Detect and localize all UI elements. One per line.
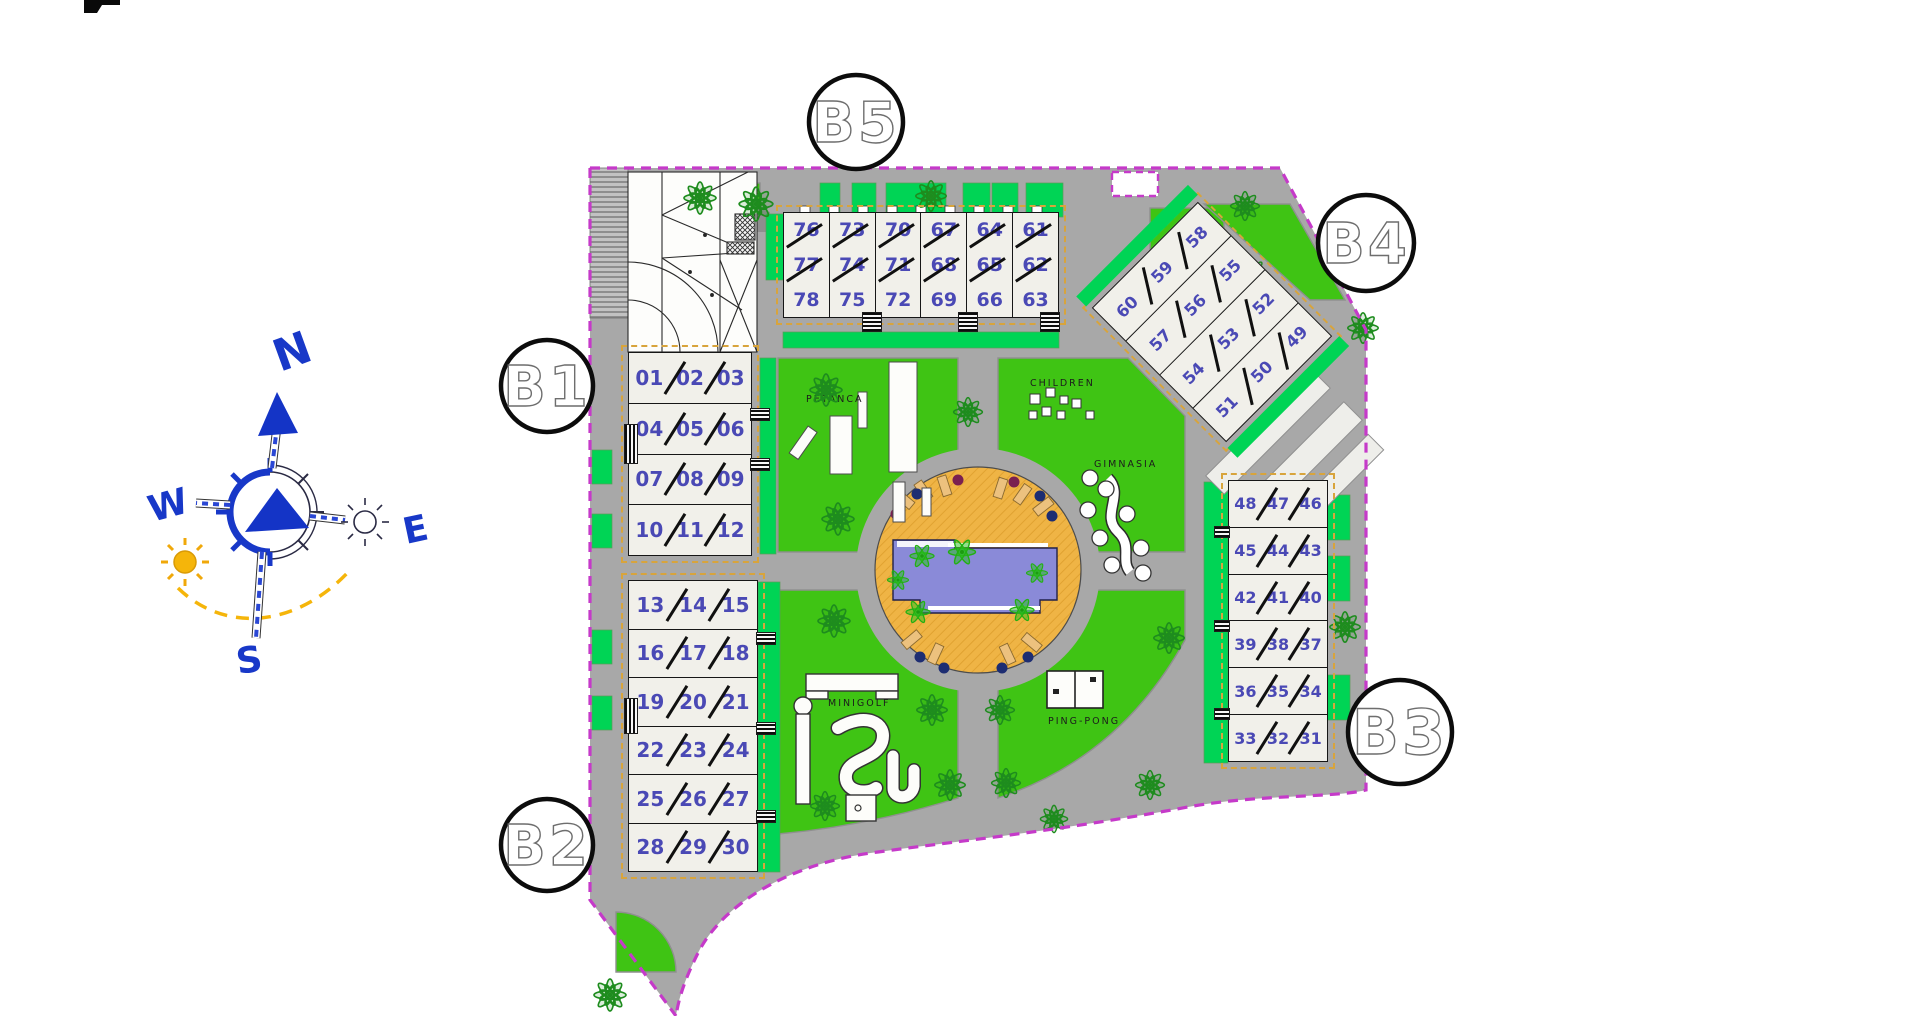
unit-row: 33 32 31 [1229, 714, 1327, 761]
building-b3: 48 47 46 45 44 43 42 41 40 39 38 37 36 3… [1228, 480, 1328, 762]
sun-icon-yellow [161, 538, 209, 586]
unit-number: 06 [710, 404, 751, 454]
unit-number: 08 [670, 455, 711, 505]
unit-column: 76 77 78 [784, 213, 829, 317]
unit-number: 25 [629, 775, 672, 823]
unit-column: 64 65 66 [966, 213, 1012, 317]
unit-row: 10 11 12 [629, 504, 751, 555]
stairwell-hatch [624, 698, 638, 734]
stairwell-hatch [756, 810, 776, 823]
unit-number: 43 [1294, 528, 1327, 574]
stairwell-hatch [958, 312, 978, 332]
unit-column: 61 62 63 [1012, 213, 1058, 317]
unit-number: 16 [629, 630, 672, 678]
unit-column: 67 68 69 [920, 213, 966, 317]
unit-number: 27 [714, 775, 757, 823]
stairwell-hatch [624, 424, 638, 464]
compass-w-label: W [144, 481, 193, 531]
stairwell-hatch [1214, 526, 1230, 538]
unit-row: 28 29 30 [629, 823, 757, 872]
unit-column: 73 74 75 [829, 213, 875, 317]
stairwell-hatch [1214, 620, 1230, 632]
compass-rose: N W E S [144, 322, 432, 683]
building-b2: 13 14 15 16 17 18 19 20 21 22 23 24 25 2… [628, 580, 758, 872]
unit-number: 72 [876, 282, 921, 317]
sun-path-arc [178, 568, 352, 618]
unit-number: 14 [672, 581, 715, 629]
ping-pong-table [1047, 671, 1103, 708]
unit-row: 39 38 37 [1229, 620, 1327, 667]
svg-text:B5: B5 [812, 91, 900, 156]
unit-number: 21 [714, 678, 757, 726]
unit-number: 23 [672, 727, 715, 775]
stairwell-hatch [756, 722, 776, 735]
site-plan: PETANCA CHILDREN GIMNASIA MINIGOLF PING-… [0, 0, 1920, 1016]
unit-number: 46 [1294, 481, 1327, 527]
svg-text:B4: B4 [1322, 212, 1410, 277]
block-marker-b5: B5 [809, 75, 903, 169]
stairwell-hatch [750, 458, 770, 471]
unit-number: 29 [672, 824, 715, 872]
block-marker-b4: B4 [1318, 195, 1414, 291]
unit-row: 16 17 18 [629, 629, 757, 678]
unit-column: 70 71 72 [875, 213, 921, 317]
unit-number: 26 [672, 775, 715, 823]
block-marker-b1: B1 [501, 340, 593, 432]
unit-number: 10 [629, 505, 670, 555]
unit-number: 11 [670, 505, 711, 555]
stairwell-hatch [1214, 708, 1230, 720]
svg-text:B3: B3 [1352, 696, 1448, 769]
compass-n-label: N [266, 322, 318, 383]
corner-logo [84, 0, 120, 13]
north-arrow [258, 392, 298, 436]
boundary-inset-rect [1112, 172, 1158, 196]
unit-number: 28 [629, 824, 672, 872]
unit-number: 17 [672, 630, 715, 678]
minigolf-label: MINIGOLF [828, 698, 891, 709]
block-marker-b3: B3 [1348, 680, 1452, 784]
unit-number: 30 [714, 824, 757, 872]
ping-pong-label: PING-PONG [1048, 716, 1120, 727]
compass-e-label: E [399, 508, 432, 553]
unit-number: 18 [714, 630, 757, 678]
compass-s-label: S [234, 639, 265, 683]
stairwell-hatch [750, 408, 770, 421]
unit-number: 31 [1294, 715, 1327, 761]
unit-row: 19 20 21 [629, 677, 757, 726]
unit-number: 01 [629, 353, 670, 403]
unit-number: 78 [784, 282, 829, 317]
block-marker-b2: B2 [501, 799, 593, 891]
unit-number: 13 [629, 581, 672, 629]
unit-number: 37 [1294, 621, 1327, 667]
unit-row: 01 02 03 [629, 353, 751, 403]
unit-number: 03 [710, 353, 751, 403]
unit-row: 45 44 43 [1229, 527, 1327, 574]
unit-number: 02 [670, 353, 711, 403]
unit-row: 36 35 34 [1229, 667, 1327, 714]
unit-number: 05 [670, 404, 711, 454]
unit-number: 09 [710, 455, 751, 505]
unit-row: 04 05 06 [629, 403, 751, 454]
unit-number: 20 [672, 678, 715, 726]
site-plan-drawing: PETANCA CHILDREN GIMNASIA MINIGOLF PING-… [0, 0, 1920, 1016]
svg-text:B1: B1 [503, 355, 591, 420]
stairwell-hatch [1040, 312, 1060, 332]
unit-number: 34 [1294, 668, 1327, 714]
unit-number: 15 [714, 581, 757, 629]
unit-number: 24 [714, 727, 757, 775]
unit-row: 48 47 46 [1229, 481, 1327, 527]
unit-row: 42 41 40 [1229, 574, 1327, 621]
unit-row: 07 08 09 [629, 454, 751, 505]
gimnasia-label: GIMNASIA [1094, 459, 1157, 470]
unit-row: 22 23 24 [629, 726, 757, 775]
stairwell-hatch [862, 312, 882, 332]
unit-row: 25 26 27 [629, 774, 757, 823]
unit-number: 40 [1294, 575, 1327, 621]
building-b1: 01 02 03 04 05 06 07 08 09 10 11 12 [628, 352, 752, 556]
unit-number: 12 [710, 505, 751, 555]
svg-text:B2: B2 [503, 814, 591, 879]
unit-row: 13 14 15 [629, 581, 757, 629]
building-b5: 76 77 78 73 74 75 70 71 72 67 68 69 64 6… [783, 212, 1059, 318]
children-label: CHILDREN [1030, 378, 1095, 389]
stairwell-hatch [756, 632, 776, 645]
sun-icon-east [341, 498, 389, 546]
